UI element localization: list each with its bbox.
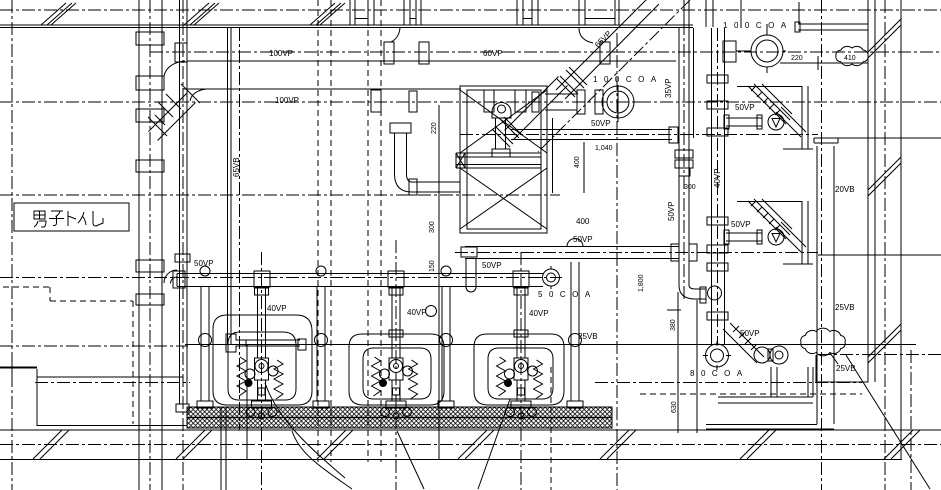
svg-text:100COA: 100COA bbox=[593, 75, 663, 84]
svg-text:50COA: 50COA bbox=[538, 290, 597, 299]
svg-text:1,800: 1,800 bbox=[638, 274, 645, 292]
svg-text:220: 220 bbox=[431, 122, 438, 134]
svg-text:40VP: 40VP bbox=[407, 308, 427, 317]
svg-text:50VP: 50VP bbox=[194, 259, 214, 268]
svg-text:25VB: 25VB bbox=[578, 332, 598, 341]
svg-text:50VP: 50VP bbox=[573, 235, 593, 244]
svg-text:65VB: 65VB bbox=[232, 157, 241, 177]
svg-text:1,040: 1,040 bbox=[595, 145, 613, 152]
svg-text:20VB: 20VB bbox=[835, 185, 855, 194]
svg-text:25VB: 25VB bbox=[836, 364, 856, 373]
svg-text:630: 630 bbox=[671, 401, 678, 413]
svg-text:50VP: 50VP bbox=[591, 119, 611, 128]
svg-text:25VB: 25VB bbox=[835, 303, 855, 312]
svg-text:50VP: 50VP bbox=[482, 261, 502, 270]
svg-text:60VP: 60VP bbox=[483, 49, 503, 58]
svg-text:410: 410 bbox=[844, 55, 856, 62]
svg-text:220: 220 bbox=[791, 55, 803, 62]
svg-text:400: 400 bbox=[574, 156, 581, 168]
svg-text:50VP: 50VP bbox=[667, 201, 676, 221]
svg-text:50VP: 50VP bbox=[735, 103, 755, 112]
svg-text:50VP: 50VP bbox=[740, 329, 760, 338]
svg-text:150: 150 bbox=[429, 260, 436, 272]
svg-text:300: 300 bbox=[429, 221, 436, 233]
svg-text:100COA: 100COA bbox=[723, 21, 793, 30]
svg-text:40VP: 40VP bbox=[713, 168, 722, 188]
svg-text:100VP: 100VP bbox=[275, 96, 299, 105]
svg-text:50VP: 50VP bbox=[731, 220, 751, 229]
svg-text:80COA: 80COA bbox=[690, 369, 749, 378]
svg-text:35VP: 35VP bbox=[664, 78, 673, 98]
svg-text:40VP: 40VP bbox=[529, 309, 549, 318]
svg-text:40VP: 40VP bbox=[267, 304, 287, 313]
svg-text:400: 400 bbox=[576, 217, 590, 226]
svg-text:380: 380 bbox=[670, 319, 677, 331]
svg-text:300: 300 bbox=[684, 184, 696, 191]
svg-text:100VP: 100VP bbox=[269, 49, 293, 58]
